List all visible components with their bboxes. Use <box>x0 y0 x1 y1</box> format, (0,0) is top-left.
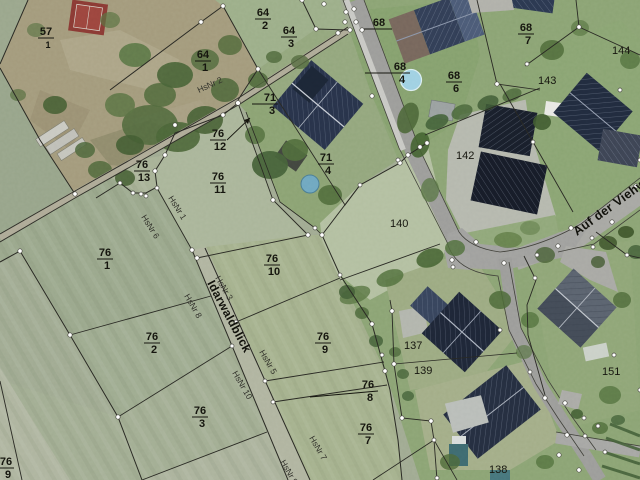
svg-text:76: 76 <box>212 171 224 183</box>
svg-text:76: 76 <box>317 331 329 343</box>
svg-text:143: 143 <box>538 75 556 87</box>
svg-text:151: 151 <box>602 366 620 378</box>
svg-text:3: 3 <box>288 38 294 50</box>
svg-text:10: 10 <box>268 266 280 278</box>
svg-text:137: 137 <box>404 340 422 352</box>
svg-text:1: 1 <box>202 62 208 74</box>
svg-text:71: 71 <box>264 92 276 104</box>
svg-text:2: 2 <box>262 20 268 32</box>
svg-text:13: 13 <box>138 172 150 184</box>
svg-text:76: 76 <box>0 456 12 468</box>
svg-text:9: 9 <box>5 469 11 480</box>
svg-text:64: 64 <box>257 7 270 19</box>
svg-text:2: 2 <box>151 344 157 356</box>
svg-text:144: 144 <box>612 45 630 57</box>
svg-text:138: 138 <box>489 464 507 476</box>
svg-text:1: 1 <box>45 40 50 50</box>
svg-text:68: 68 <box>394 61 406 73</box>
svg-text:76: 76 <box>362 379 374 391</box>
svg-text:57: 57 <box>40 26 52 38</box>
svg-text:3: 3 <box>199 418 205 430</box>
svg-text:76: 76 <box>194 405 206 417</box>
svg-text:4: 4 <box>399 74 406 86</box>
svg-text:3: 3 <box>269 105 275 117</box>
svg-text:76: 76 <box>212 128 224 140</box>
svg-text:64: 64 <box>197 49 210 61</box>
svg-text:76: 76 <box>136 159 148 171</box>
svg-text:139: 139 <box>414 365 432 377</box>
svg-text:76: 76 <box>146 331 158 343</box>
svg-text:7: 7 <box>525 35 531 47</box>
svg-text:71: 71 <box>320 152 332 164</box>
svg-text:1: 1 <box>104 260 110 272</box>
svg-text:68: 68 <box>520 22 532 34</box>
svg-text:9: 9 <box>322 344 328 356</box>
svg-text:76: 76 <box>360 422 372 434</box>
svg-text:6: 6 <box>453 83 459 95</box>
svg-text:140: 140 <box>390 218 408 230</box>
svg-text:76: 76 <box>266 253 278 265</box>
svg-text:64: 64 <box>283 25 296 37</box>
svg-text:68: 68 <box>373 17 385 29</box>
svg-text:7: 7 <box>365 435 371 447</box>
svg-text:142: 142 <box>456 150 474 162</box>
svg-text:12: 12 <box>214 141 226 153</box>
svg-text:11: 11 <box>214 184 226 196</box>
svg-text:4: 4 <box>325 165 332 177</box>
svg-text:8: 8 <box>367 392 373 404</box>
svg-text:68: 68 <box>448 70 460 82</box>
svg-text:76: 76 <box>99 247 111 259</box>
